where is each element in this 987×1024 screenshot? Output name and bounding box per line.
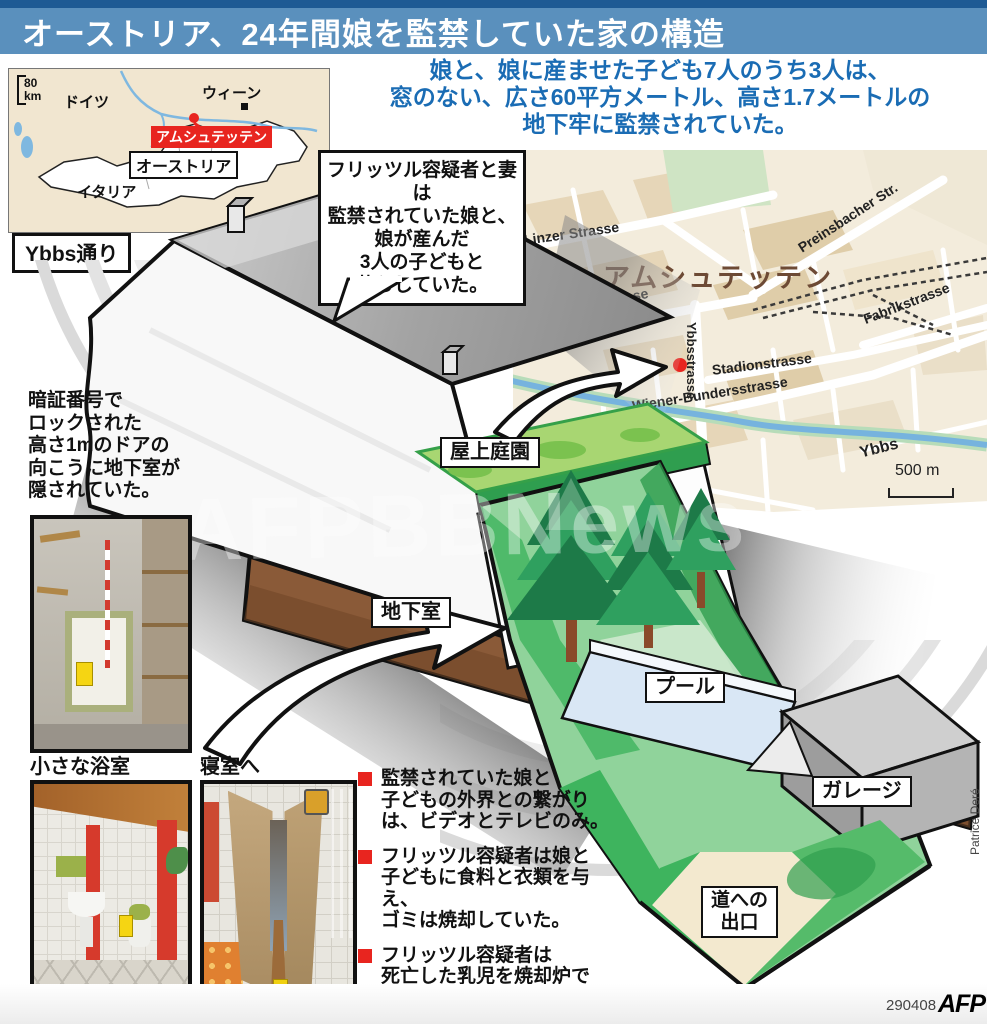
- bubble-line: 娘が産んだ: [323, 228, 521, 251]
- footer-band: [0, 984, 987, 1024]
- label-garage: ガレージ: [812, 776, 912, 807]
- infographic-canvas: オーストリア、24年間娘を監禁していた家の構造 娘と、娘に産ませた子ども7人のう…: [0, 0, 987, 1024]
- measuring-pole: [105, 540, 110, 669]
- label-basement: 地下室: [371, 597, 451, 628]
- speech-bubble-tail: [332, 276, 412, 326]
- fact-item: 監禁されていた娘と 子どもの外界との繋がり は、ビデオとテレビのみ。: [358, 768, 626, 833]
- basement-note: 暗証番号で ロックされた 高さ1mのドアの 向こうに地下室が 隠されていた。: [28, 390, 180, 503]
- bedroom-caption: 寝室へ: [200, 750, 260, 779]
- label-exit: 道への 出口: [701, 886, 778, 938]
- fact-line: 監禁されていた娘と: [381, 768, 609, 790]
- watermark: AFPBBNews: [179, 470, 750, 579]
- fact-line: 子どもに食料と衣類を与え、: [381, 867, 626, 910]
- label-pool: プール: [645, 672, 725, 703]
- note-line: ロックされた: [28, 413, 180, 436]
- fact-line: フリッツル容疑者は娘と: [381, 846, 626, 868]
- sink: [68, 892, 105, 917]
- date-stamp: 290408: [886, 997, 936, 1014]
- red-square-bullet: [358, 850, 372, 864]
- bathroom-photo: [30, 780, 192, 1014]
- fact-line: 子どもの外界との繋がり: [381, 790, 609, 812]
- fact-line: は、ビデオとテレビのみ。: [381, 811, 609, 833]
- corridor-photo: [200, 780, 357, 1014]
- note-line: 暗証番号で: [28, 390, 180, 413]
- label-exit-line: 道への: [711, 890, 768, 912]
- red-square-bullet: [358, 949, 372, 963]
- bathroom-caption: 小さな浴室: [30, 750, 130, 779]
- basement-door-photo: [30, 515, 192, 753]
- note-line: 向こうに地下室が: [28, 458, 180, 481]
- bubble-line: 監禁されていた娘と、: [323, 205, 521, 228]
- evidence-marker: [76, 662, 93, 686]
- afp-logo: AFP: [938, 990, 985, 1019]
- bubble-line: 3人の子どもと: [323, 251, 521, 274]
- note-line: 隠されていた。: [28, 480, 180, 503]
- photo-credit: Patrice Deré: [968, 788, 982, 855]
- note-line: 高さ1mのドアの: [28, 435, 180, 458]
- red-square-bullet: [358, 772, 372, 786]
- bubble-line: フリッツル容疑者と妻は: [323, 159, 521, 205]
- fact-item: フリッツル容疑者は娘と 子どもに食料と衣類を与え、 ゴミは焼却していた。: [358, 846, 626, 932]
- label-roof-garden: 屋上庭園: [440, 437, 540, 468]
- fact-line: フリッツル容疑者は: [381, 945, 590, 967]
- label-exit-line: 出口: [711, 912, 768, 934]
- fact-line: ゴミは焼却していた。: [381, 910, 626, 932]
